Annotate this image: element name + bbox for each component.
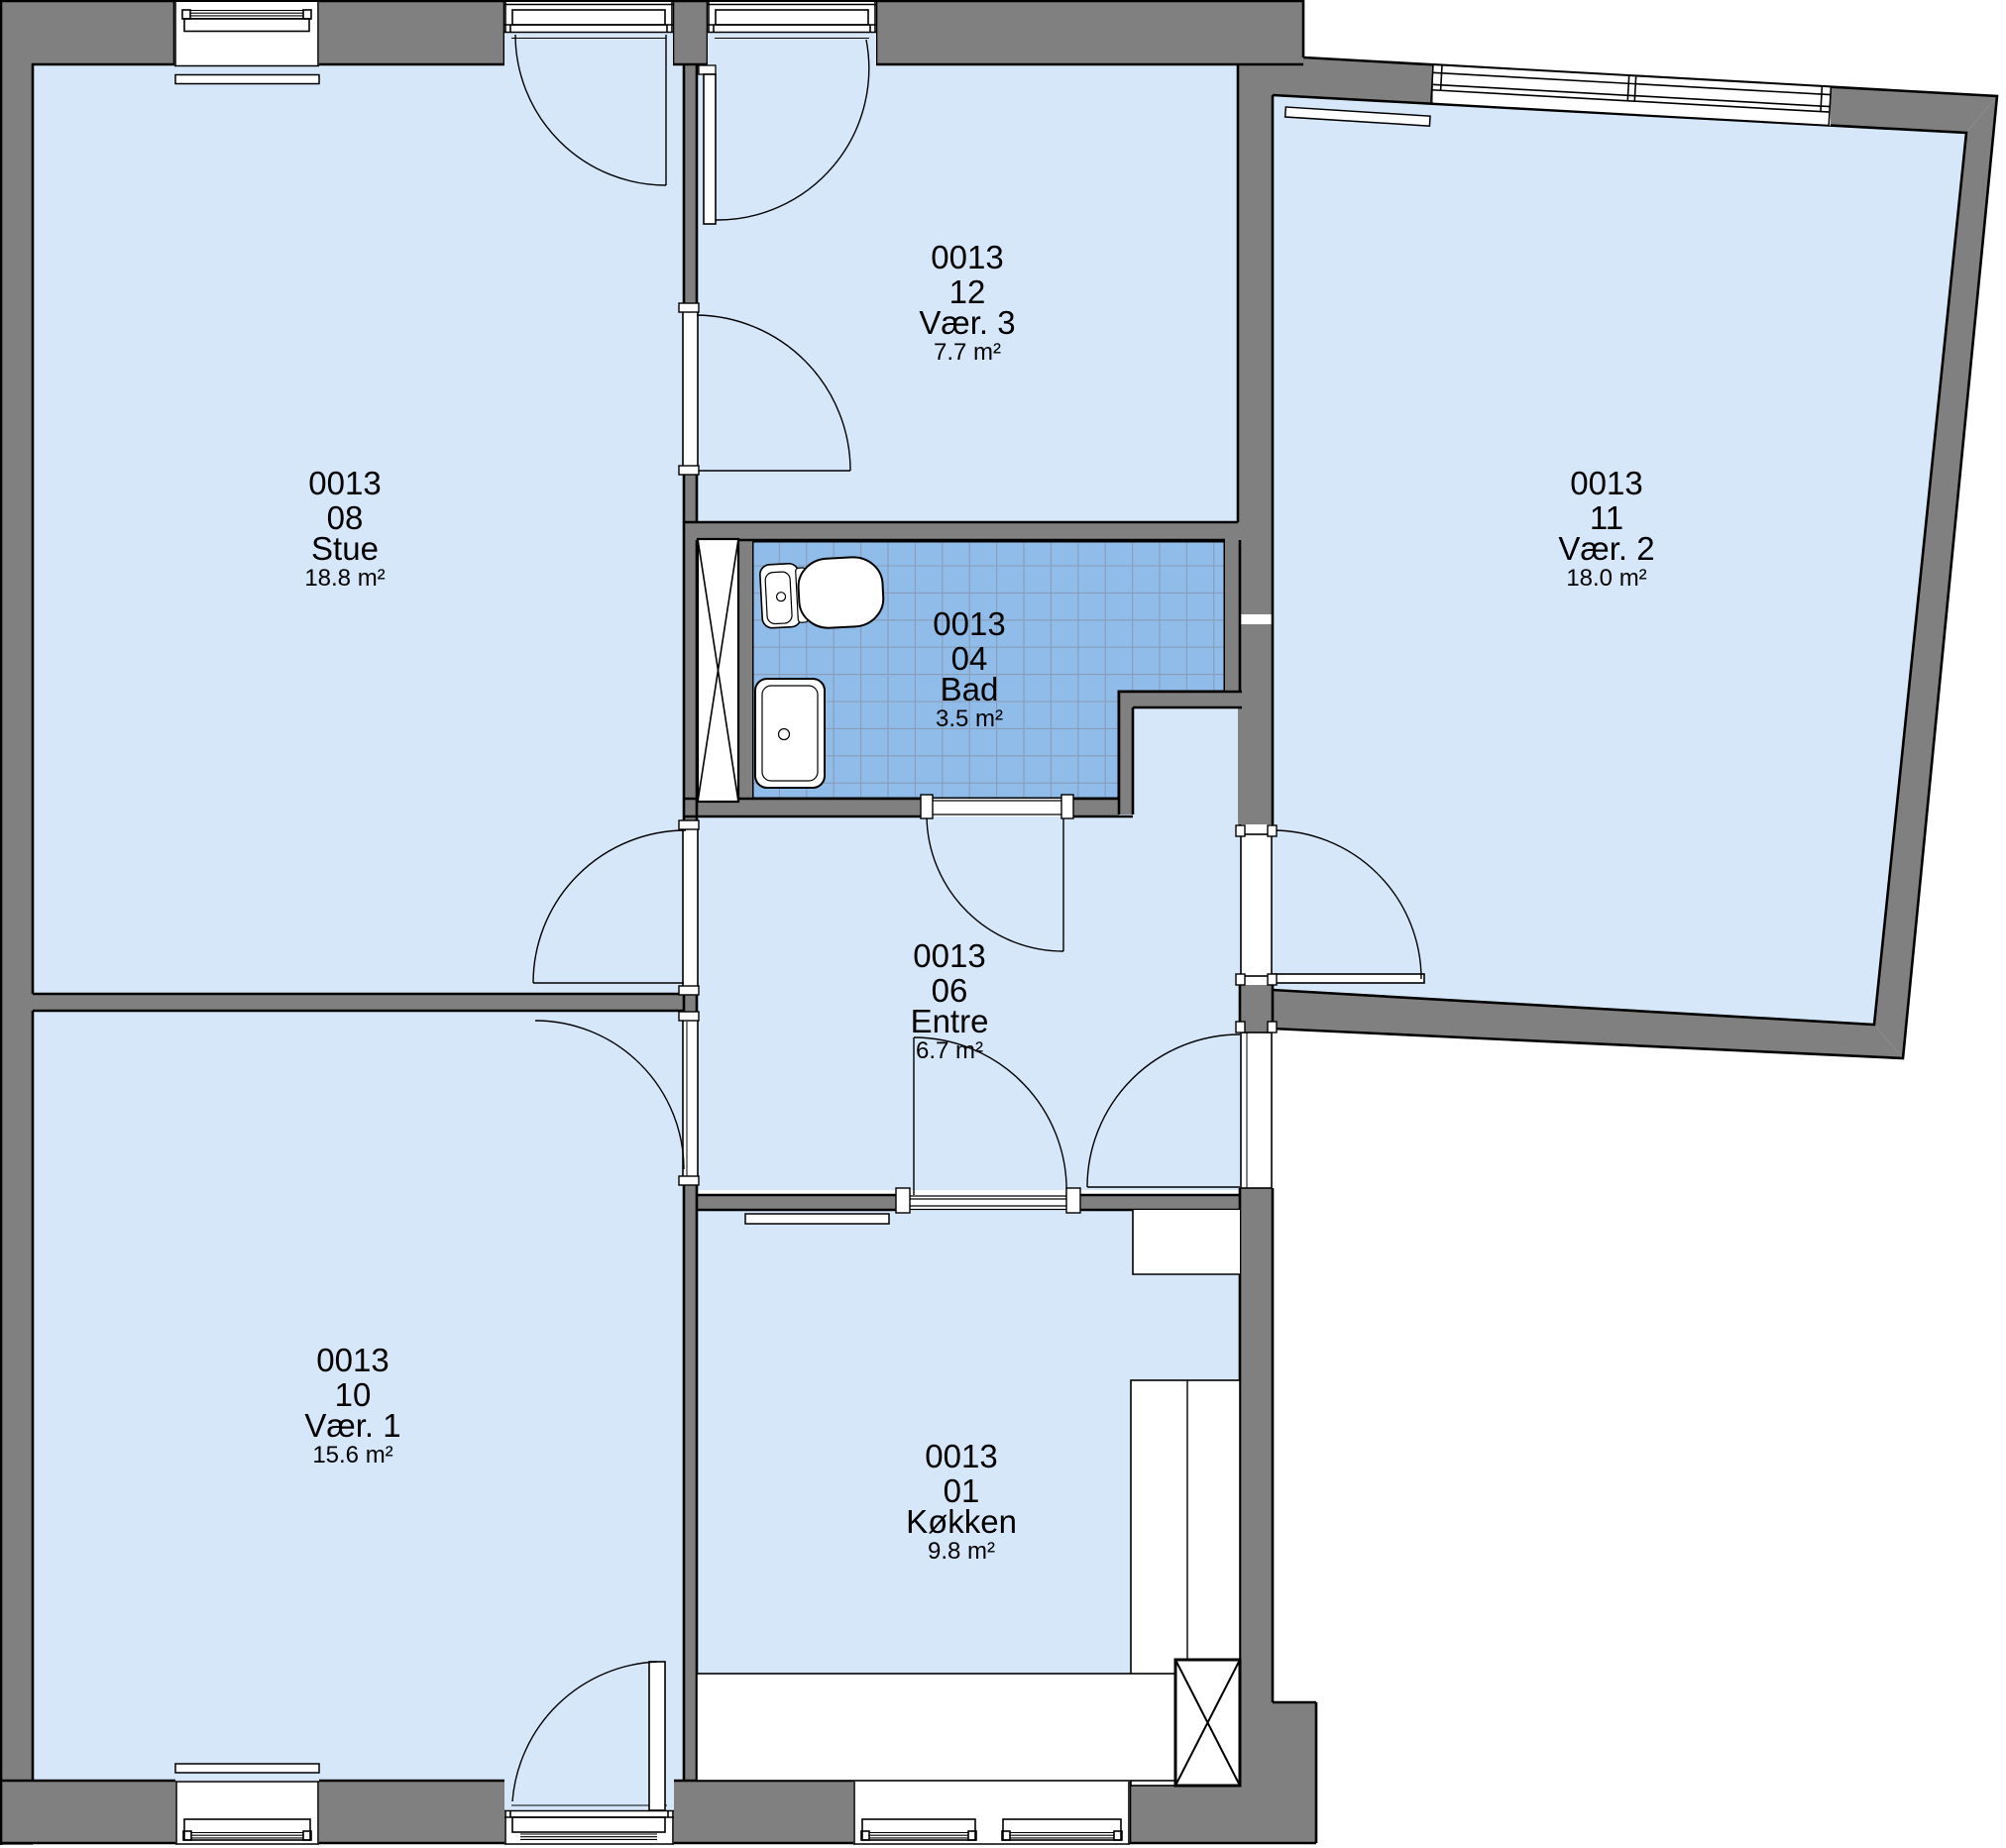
svg-text:0013: 0013 [913, 937, 985, 974]
svg-text:6.7 m²: 6.7 m² [916, 1037, 983, 1064]
svg-text:Bad: Bad [941, 671, 999, 707]
svg-text:Vær. 3: Vær. 3 [919, 304, 1015, 341]
svg-text:Vær. 2: Vær. 2 [1558, 530, 1654, 567]
svg-text:0013: 0013 [925, 1438, 997, 1474]
svg-text:0013: 0013 [931, 239, 1003, 275]
svg-text:Vær. 1: Vær. 1 [304, 1407, 400, 1444]
svg-text:0013: 0013 [933, 605, 1005, 642]
svg-text:0013: 0013 [1570, 465, 1642, 501]
svg-text:18.8 m²: 18.8 m² [304, 565, 385, 592]
svg-text:Køkken: Køkken [906, 1503, 1017, 1540]
svg-text:7.7 m²: 7.7 m² [934, 339, 1001, 366]
svg-text:Stue: Stue [311, 530, 379, 567]
svg-text:Entre: Entre [911, 1003, 989, 1039]
svg-text:15.6 m²: 15.6 m² [312, 1442, 392, 1468]
svg-text:18.0 m²: 18.0 m² [1566, 565, 1646, 592]
svg-text:0013: 0013 [316, 1342, 389, 1378]
svg-text:3.5 m²: 3.5 m² [936, 706, 1003, 732]
svg-text:0013: 0013 [308, 465, 381, 501]
svg-text:9.8 m²: 9.8 m² [928, 1538, 995, 1565]
